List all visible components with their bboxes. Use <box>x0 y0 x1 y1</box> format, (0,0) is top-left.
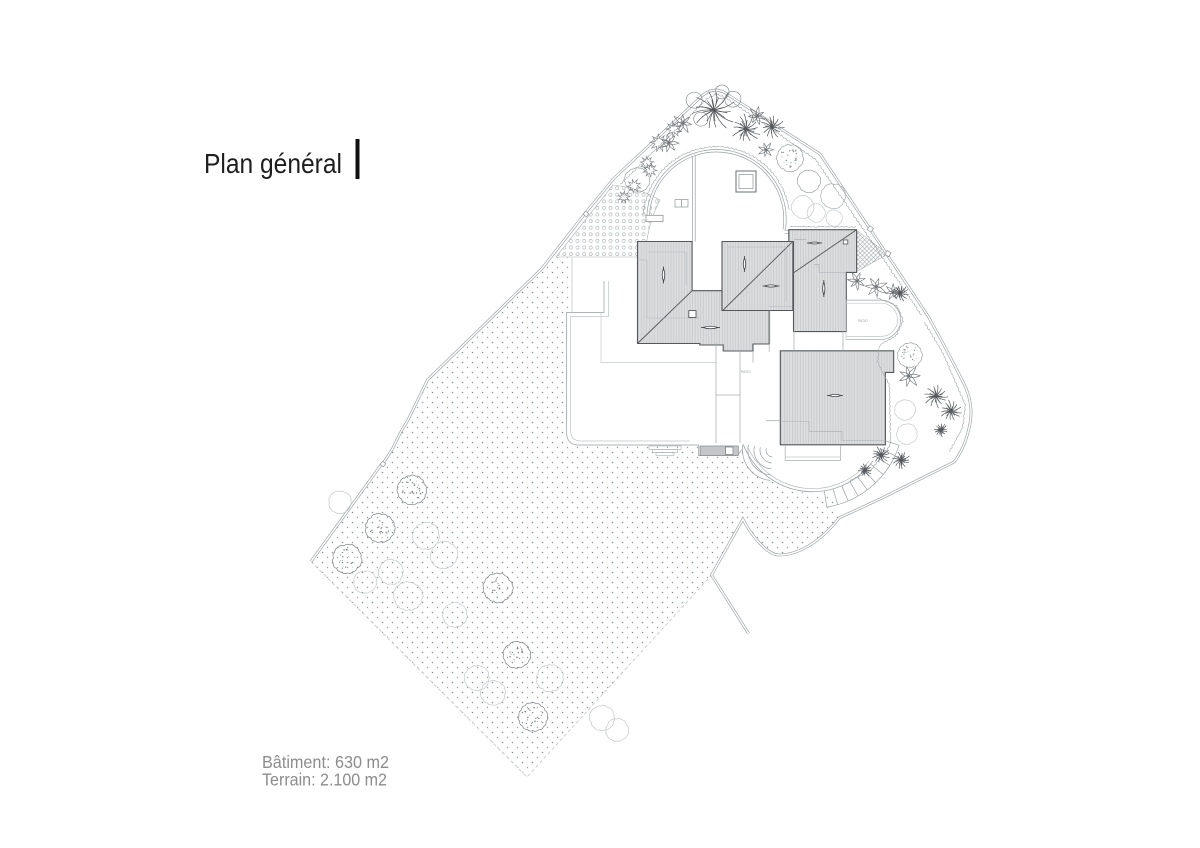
svg-text:PATIO: PATIO <box>741 370 751 374</box>
svg-text:Terrain: 2.100 m2: Terrain: 2.100 m2 <box>262 770 387 790</box>
svg-text:PATIO: PATIO <box>858 319 868 323</box>
svg-text:Plan général: Plan général <box>204 148 342 179</box>
